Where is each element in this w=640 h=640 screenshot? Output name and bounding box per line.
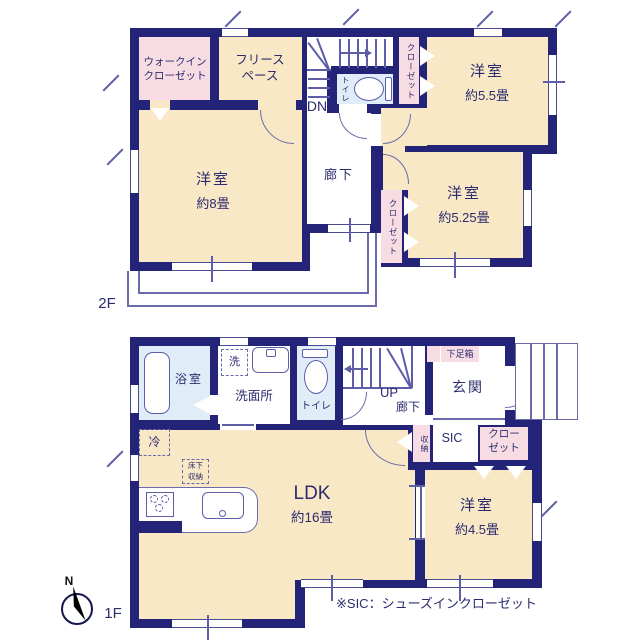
balcony-line-inner <box>367 233 369 294</box>
stair-tread <box>339 39 341 68</box>
stair-arrow <box>348 368 368 370</box>
toilet-tank-icon <box>302 349 328 358</box>
label-storage-1f: 収納 <box>414 428 429 460</box>
door-gap <box>258 100 296 110</box>
entrance-step-line <box>433 418 505 420</box>
balcony-line-inner <box>138 271 140 294</box>
stair-tread <box>348 39 350 68</box>
stair-tread <box>384 39 386 68</box>
door-arc-toilet-2f <box>339 113 367 139</box>
stair-tread <box>375 39 377 68</box>
balcony-line <box>375 233 377 307</box>
window-tick <box>331 575 333 601</box>
stair-arrow <box>341 52 367 54</box>
toilet-bowl-icon <box>304 360 328 394</box>
window-tick <box>543 81 565 83</box>
window <box>548 55 557 115</box>
label-sic: SIC <box>434 430 470 446</box>
closet-1f-line1: クロー <box>488 428 520 440</box>
stair-tread <box>357 39 359 68</box>
stair-tread <box>308 78 330 80</box>
label-bedroom-55-name: 洋室 <box>447 62 527 82</box>
label-bedroom-8-name: 洋室 <box>173 170 253 190</box>
label-ldk-size: 約16畳 <box>282 509 342 527</box>
toilet-tank-icon <box>385 77 392 101</box>
vent-mark <box>107 451 124 468</box>
label-free-space: フリース ペース <box>220 52 300 85</box>
label-walk-in-closet: ウォークイン クローゼット <box>140 56 210 83</box>
label-hallway-1f: 廊下 <box>388 400 428 416</box>
toilet-bowl-icon <box>354 77 384 101</box>
window-tick <box>207 615 209 640</box>
sliding-door-line <box>222 424 254 426</box>
balcony-line <box>127 305 377 307</box>
label-stairs-down: DN <box>300 97 334 115</box>
stair-edge-line <box>411 346 413 388</box>
window <box>220 337 248 346</box>
label-floor-2f: 2F <box>92 294 122 314</box>
window-tick <box>409 485 425 487</box>
window <box>523 190 532 226</box>
porch-step-line <box>556 344 558 419</box>
window <box>222 28 248 37</box>
label-toilet-1f: トイレ <box>296 400 336 413</box>
label-hallway-2f: 廊下 <box>314 167 364 184</box>
label-entrance: 玄関 <box>444 378 492 396</box>
burner-icon <box>150 495 158 503</box>
hall-sic-gap <box>425 415 433 425</box>
label-bath: 浴室 <box>166 372 212 388</box>
label-bedroom-8-size: 約8畳 <box>173 196 253 213</box>
label-toilet-2f: トイレ <box>338 75 350 104</box>
porch-step-line <box>543 344 545 419</box>
window <box>308 337 336 346</box>
door-arc-bedroom-525 <box>383 154 409 184</box>
window-tick <box>409 538 425 540</box>
label-floor-1f: 1F <box>99 604 127 624</box>
floor-plan-canvas: ウォークイン クローゼット フリース ペース DN トイレ クローゼット 洋室 … <box>0 0 640 640</box>
wic-line2: クローゼット <box>144 70 207 82</box>
balcony-line <box>127 271 129 307</box>
stove-icon <box>146 492 174 517</box>
wic-line1: ウォークイン <box>144 56 207 68</box>
window <box>474 28 502 37</box>
vent-mark <box>225 11 242 28</box>
label-closet-1f: クロー ゼット <box>479 428 529 455</box>
vent-mark <box>477 11 494 28</box>
porch-step-line <box>530 344 532 419</box>
shoe-box-label: 下足箱 <box>446 349 473 359</box>
vent-mark <box>107 149 124 166</box>
door-arc-ldk <box>365 430 405 466</box>
underfloor-line1: 床下 <box>188 461 203 470</box>
free-space-line1: フリース <box>235 53 284 67</box>
footnote: ※SIC：シューズインクローゼット <box>336 596 566 613</box>
closet-1f-line2: ゼット <box>488 442 520 454</box>
door-gap <box>339 104 367 113</box>
door-arc-toilet-1f <box>341 392 367 420</box>
stair-tread <box>308 87 330 89</box>
sliding-door-line <box>420 486 422 540</box>
window-tick <box>454 252 456 278</box>
stair-tread <box>370 348 372 388</box>
stair-tread <box>379 348 381 388</box>
balcony-gap <box>310 233 381 271</box>
label-closet-2f-mid: クローゼット <box>384 193 398 261</box>
label-closet-2f-north: クローゼット <box>402 40 416 102</box>
window <box>130 455 139 481</box>
compass-north-label: N <box>60 574 78 590</box>
burner-icon <box>161 495 169 503</box>
shoe-cabinet <box>427 346 440 362</box>
vent-mark <box>343 9 360 26</box>
door-gap <box>210 395 218 415</box>
label-bedroom-55-size: 約5.5畳 <box>447 88 527 105</box>
room-ldk-bottom <box>139 580 295 619</box>
window <box>130 150 139 193</box>
sink-drain-icon <box>219 510 226 517</box>
vent-mark <box>541 501 558 518</box>
label-washer: 洗 <box>221 349 248 376</box>
window <box>130 385 139 413</box>
vent-mark <box>103 75 120 92</box>
label-underfloor: 床下 収納 <box>182 461 209 482</box>
shoe-box: 下足箱 <box>441 346 479 362</box>
label-fridge: 冷 <box>139 429 170 456</box>
counter-wall-stub <box>139 521 182 533</box>
vent-mark <box>555 11 572 28</box>
window-tick <box>349 218 351 242</box>
label-bedroom-525-size: 約5.25畳 <box>424 210 504 227</box>
label-bedroom-45-size: 約4.5畳 <box>437 522 517 539</box>
faucet-icon <box>266 349 276 357</box>
underfloor-line2: 収納 <box>188 472 203 481</box>
wall-toilet-2f-top <box>331 66 399 74</box>
window <box>532 503 542 541</box>
label-bedroom-45-name: 洋室 <box>437 496 517 516</box>
balcony-line-inner <box>138 292 369 294</box>
window-tick <box>211 256 213 282</box>
door-arc <box>260 110 294 144</box>
door-arc-bedroom-55 <box>383 114 411 144</box>
door-gap <box>371 114 381 146</box>
label-washroom: 洗面所 <box>218 388 290 404</box>
burner-icon <box>155 504 163 512</box>
door-gap <box>383 146 405 154</box>
label-bedroom-525-name: 洋室 <box>424 184 504 204</box>
free-space-line2: ペース <box>242 69 279 83</box>
label-ldk-name: LDK <box>282 482 342 507</box>
porch-steps <box>515 343 578 420</box>
